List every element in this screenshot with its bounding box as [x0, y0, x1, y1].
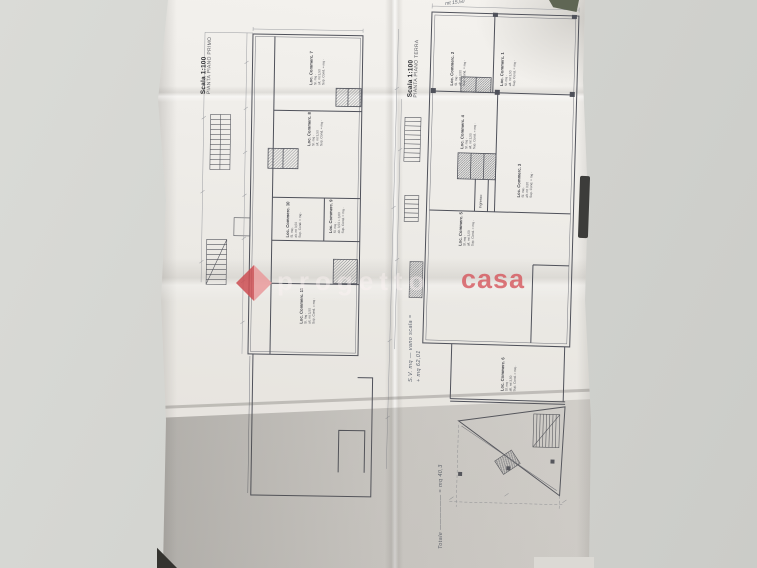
room-label-4: Loc. Commerc. 4 Sl. mq · alt. mt 3,50 Su… [459, 115, 486, 150]
room-label-9: Loc. Commerc. 9 Sl. mq · alt. 3,50 + 3,6… [328, 199, 355, 233]
room-label-3: Loc. Commerc. 3 Sl. mq · alt. mt 3,50 Su… [516, 163, 543, 198]
watermark-diamond-logo-icon [234, 263, 274, 303]
right-plan-title: PIANTA PIANO TERRA [414, 30, 422, 98]
folded-blueprint-paper: Scala 1:100 PIANTA PIANO PRIMO Loc. Comm… [155, 0, 595, 568]
room-label-6: Loc. Commerc. 6 Sl. mq · alt. mt 3,50 Su… [499, 357, 526, 392]
room-label-1: Loc. Commerc. 1 Sl. mq · alt. mt 3,50 Su… [499, 52, 526, 87]
external-stairs [206, 114, 252, 285]
room-label-10: Loc. Commerc. 10 Sl. mq · alt. mt 3,50 S… [285, 203, 312, 237]
photo-of-floor-plan-document: Scala 1:100 PIANTA PIANO PRIMO Loc. Comm… [0, 0, 757, 568]
room-label-2: Loc. Commerc. 2 Sl. mq · alt. mt 3,50 Su… [449, 51, 476, 86]
watermark-brand-text: casa [461, 264, 541, 296]
ingresso-label: Ingresso [479, 178, 484, 208]
shadow-gap-right-edge [578, 176, 590, 238]
left-plan-title-block: Scala 1:100 PIANTA PIANO PRIMO [200, 26, 219, 94]
room-label-5: Loc. Commerc. 5 Sl. mq · alt. mt 3,50 Su… [457, 212, 484, 247]
room-label-8: Loc. Commerc. 8 Sl. mq · alt. mt 3,50 Su… [306, 112, 333, 146]
watermark-prefix-text: progetto [277, 266, 461, 298]
right-plan-title-block: Scala 1:100 PIANTA PIANO TERRA [407, 29, 427, 97]
dimension-lines [198, 26, 363, 355]
handwritten-side-note: S.V. mq — vano scala = + mq 62,01 [407, 292, 433, 382]
room-label-7: Loc. Commerc. 7 Sl. mq · alt. mt 3,50 Su… [308, 51, 335, 85]
paper-strip-bottom [534, 557, 594, 568]
left-plan-title: PIANTA PIANO PRIMO [208, 26, 215, 94]
